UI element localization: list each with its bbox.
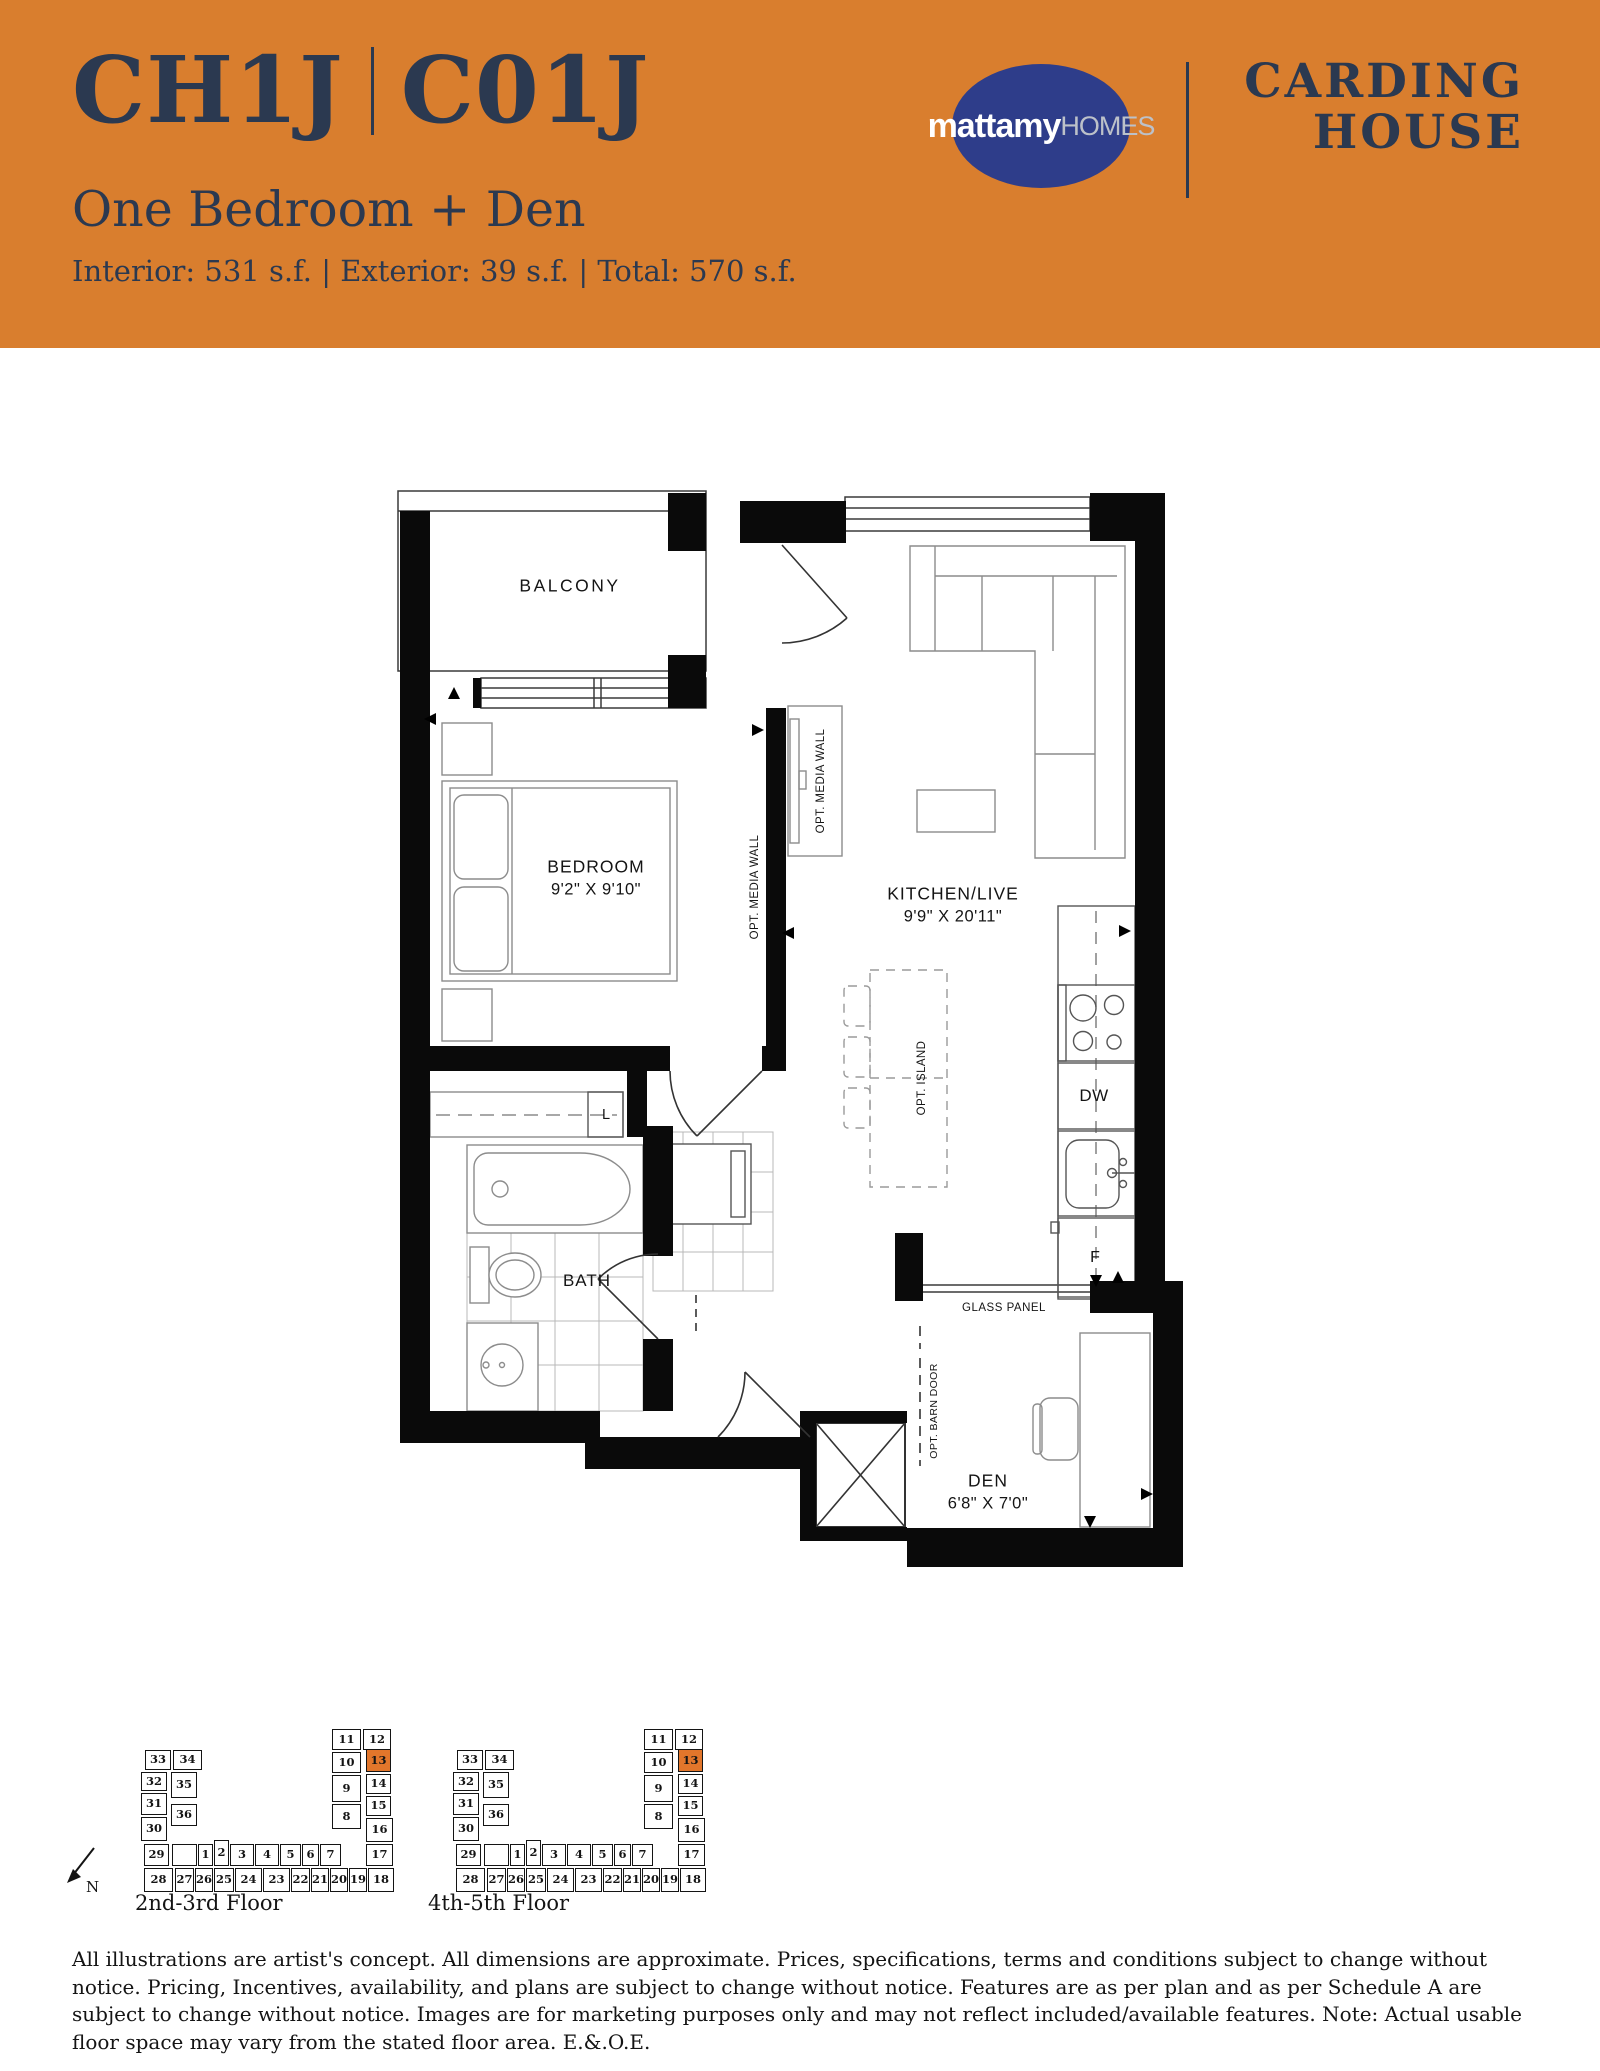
project-line1: CARDING — [1244, 56, 1524, 107]
keyplan-unit-7: 7 — [632, 1844, 653, 1866]
keyplan-unit-9: 9 — [644, 1775, 673, 1802]
keyplan-unit-31: 31 — [453, 1793, 479, 1815]
keyplan-unit-5: 5 — [280, 1844, 301, 1866]
keyplan-unit-5: 5 — [592, 1844, 613, 1866]
keyplan-unit-10: 10 — [644, 1752, 673, 1773]
keyplan-unit-1: 1 — [510, 1844, 525, 1866]
keyplan-unit-26: 26 — [195, 1868, 213, 1892]
keyplan-unit-25: 25 — [526, 1868, 546, 1892]
keyplan-unit-35: 35 — [171, 1772, 197, 1798]
vanity-sink — [467, 1323, 538, 1411]
header-divider — [1186, 62, 1189, 198]
toilet — [470, 1247, 541, 1303]
key-plan-4th-5th: 3334323531363029282726252423222120191812… — [422, 1688, 714, 1903]
keyplan-unit-13: 13 — [366, 1749, 391, 1772]
keyplan-unit-1: 1 — [198, 1844, 213, 1866]
sectional-sofa — [910, 546, 1125, 858]
keyplan-unit-28: 28 — [456, 1868, 485, 1892]
unit-stats: Interior: 531 s.f. | Exterior: 39 s.f. |… — [72, 254, 797, 288]
keyplan-unit-3: 3 — [542, 1844, 566, 1866]
key-plan-caption-1: 2nd-3rd Floor — [135, 1891, 283, 1915]
unit-name: One Bedroom + Den — [72, 181, 586, 238]
optional-island — [844, 970, 947, 1187]
keyplan-unit-34: 34 — [173, 1750, 202, 1770]
keyplan-unit-16: 16 — [678, 1818, 705, 1842]
keyplan-unit-12: 12 — [363, 1729, 391, 1750]
keyplan-unit-30: 30 — [141, 1817, 167, 1841]
logo-word-mattamy: mattamy — [928, 107, 1061, 146]
keyplan-unit-4: 4 — [567, 1844, 591, 1866]
keyplan-unit-20: 20 — [642, 1868, 660, 1892]
keyplan-unit-24: 24 — [547, 1868, 574, 1892]
keyplan-unit-34: 34 — [485, 1750, 514, 1770]
header-band: CH1J C01J One Bedroom + Den Interior: 53… — [0, 0, 1600, 348]
keyplan-unit-6: 6 — [614, 1844, 631, 1866]
keyplan-unit-15: 15 — [366, 1796, 391, 1816]
keyplan-unit-27: 27 — [487, 1868, 506, 1892]
kitchen-live-label: KITCHEN/LIVE — [887, 884, 1019, 905]
keyplan-unit-32: 32 — [141, 1772, 167, 1791]
keyplan-unit-8: 8 — [644, 1804, 673, 1829]
keyplan-unit-13: 13 — [678, 1749, 703, 1772]
den-label: DEN — [968, 1471, 1008, 1492]
keyplan-unit-7: 7 — [320, 1844, 341, 1866]
bedroom-door — [670, 1071, 762, 1136]
keyplan-unit-3: 3 — [230, 1844, 254, 1866]
keyplan-unit-29: 29 — [456, 1844, 481, 1866]
keyplan-unit-11: 11 — [644, 1729, 673, 1750]
den-dimensions: 6'8" X 7'0" — [948, 1495, 1028, 1514]
kitchen-live-dimensions: 9'9" X 20'11" — [904, 908, 1003, 927]
keyplan-unit-12: 12 — [675, 1729, 703, 1750]
nightstand — [442, 723, 492, 775]
keyplan-unit-10: 10 — [332, 1752, 361, 1773]
keyplan-unit-29: 29 — [144, 1844, 169, 1866]
linen-label: L — [602, 1107, 610, 1123]
bath-label: BATH — [563, 1271, 611, 1291]
keyplan-unit-2: 2 — [214, 1840, 229, 1866]
keyplan-unit-9: 9 — [332, 1775, 361, 1802]
project-name: CARDING HOUSE — [1244, 56, 1524, 158]
keyplan-unit-28: 28 — [144, 1868, 173, 1892]
shaft — [816, 1423, 905, 1527]
desk — [1080, 1333, 1150, 1527]
barn-door-label: OPT. BARN DOOR — [928, 1363, 940, 1458]
glass-panel-wall — [923, 1285, 1090, 1292]
pillow — [454, 887, 508, 971]
dishwasher-label: DW — [1079, 1086, 1108, 1106]
keyplan-unit-36: 36 — [483, 1804, 509, 1826]
keyplan-unit-27: 27 — [175, 1868, 194, 1892]
keyplan-unit-4: 4 — [255, 1844, 279, 1866]
key-plan-2nd-3rd: 3334323531363029282726252423222120191812… — [110, 1688, 402, 1903]
mattamy-homes-logo: mattamyHOMES — [952, 64, 1130, 188]
keyplan-unit-18: 18 — [368, 1868, 394, 1892]
keyplan-unit-26: 26 — [507, 1868, 525, 1892]
keyplan-unit-21: 21 — [623, 1868, 641, 1892]
keyplan-unit-15: 15 — [678, 1796, 703, 1816]
keyplan-unit-11: 11 — [332, 1729, 361, 1750]
fridge-label: F — [1090, 1249, 1100, 1267]
keyplan-unit-6: 6 — [302, 1844, 319, 1866]
project-line2: HOUSE — [1244, 107, 1524, 158]
keyplan-unit-17: 17 — [366, 1844, 393, 1866]
bedroom-closet — [430, 1092, 623, 1137]
bedroom-label: BEDROOM — [547, 857, 644, 878]
media-wall-label-bedroom: OPT. MEDIA WALL — [749, 835, 761, 940]
keyplan-unit-14: 14 — [678, 1774, 703, 1794]
keyplan-unit-17: 17 — [678, 1844, 705, 1866]
logo-word-homes: HOMES — [1060, 111, 1154, 142]
keyplan-unit-33: 33 — [145, 1750, 171, 1770]
balcony-door — [782, 545, 847, 643]
nightstand — [442, 989, 492, 1041]
island-label: OPT. ISLAND — [916, 1041, 928, 1116]
keyplan-unit-19: 19 — [661, 1868, 679, 1892]
keyplan-unit-8: 8 — [332, 1804, 361, 1829]
keyplan-unit-31: 31 — [141, 1793, 167, 1815]
keyplan-unit-25: 25 — [214, 1868, 234, 1892]
keyplan-unit-18: 18 — [680, 1868, 706, 1892]
keyplan-unit-35: 35 — [483, 1772, 509, 1798]
keyplan-unit-24: 24 — [235, 1868, 262, 1892]
floor-plan-drawing — [390, 481, 1185, 1576]
disclaimer-text: All illustrations are artist's concept. … — [72, 1946, 1546, 2056]
balcony-label: BALCONY — [519, 576, 620, 597]
island-stool — [844, 1088, 870, 1128]
keyplan-unit-30: 30 — [453, 1817, 479, 1841]
keyplan-unit-20: 20 — [330, 1868, 348, 1892]
coffee-table — [917, 790, 995, 832]
washer-dryer — [671, 1144, 751, 1224]
glass-panel-label: GLASS PANEL — [962, 1302, 1046, 1314]
keyplan-unit-14: 14 — [366, 1774, 391, 1794]
keyplan-unit-16: 16 — [366, 1818, 393, 1842]
pillow — [454, 795, 508, 879]
bedroom-dimensions: 9'2" X 9'10" — [551, 881, 641, 900]
keyplan-unit-33: 33 — [457, 1750, 483, 1770]
keyplan-unit-19: 19 — [349, 1868, 367, 1892]
entry-door — [718, 1372, 810, 1437]
keyplan-unit-22: 22 — [291, 1868, 310, 1892]
north-arrow: N — [60, 1842, 106, 1900]
bath-door — [598, 1254, 658, 1339]
office-chair — [1033, 1398, 1078, 1460]
keyplan-unit-blank — [484, 1844, 509, 1866]
unit-code: CH1J C01J — [72, 40, 649, 141]
keyplan-unit-21: 21 — [311, 1868, 329, 1892]
key-plan-caption-2: 4th-5th Floor — [428, 1891, 569, 1915]
island-stool — [844, 986, 870, 1026]
doors — [598, 545, 920, 1466]
keyplan-unit-36: 36 — [171, 1804, 197, 1826]
unit-code-divider — [371, 47, 374, 135]
keyplan-unit-23: 23 — [575, 1868, 602, 1892]
living-window — [845, 497, 1090, 531]
keyplan-unit-2: 2 — [526, 1840, 541, 1866]
keyplan-unit-23: 23 — [263, 1868, 290, 1892]
floor-plan: BALCONY BEDROOM 9'2" X 9'10" KITCHEN/LIV… — [390, 481, 1185, 1576]
unit-code-right: C01J — [401, 40, 650, 141]
island-stool — [844, 1037, 870, 1077]
north-label: N — [86, 1878, 99, 1896]
keyplan-unit-blank — [172, 1844, 197, 1866]
keyplan-unit-22: 22 — [603, 1868, 622, 1892]
media-wall-label-living: OPT. MEDIA WALL — [815, 729, 827, 834]
bathtub — [467, 1145, 643, 1233]
keyplan-unit-32: 32 — [453, 1772, 479, 1791]
unit-code-left: CH1J — [72, 40, 344, 141]
